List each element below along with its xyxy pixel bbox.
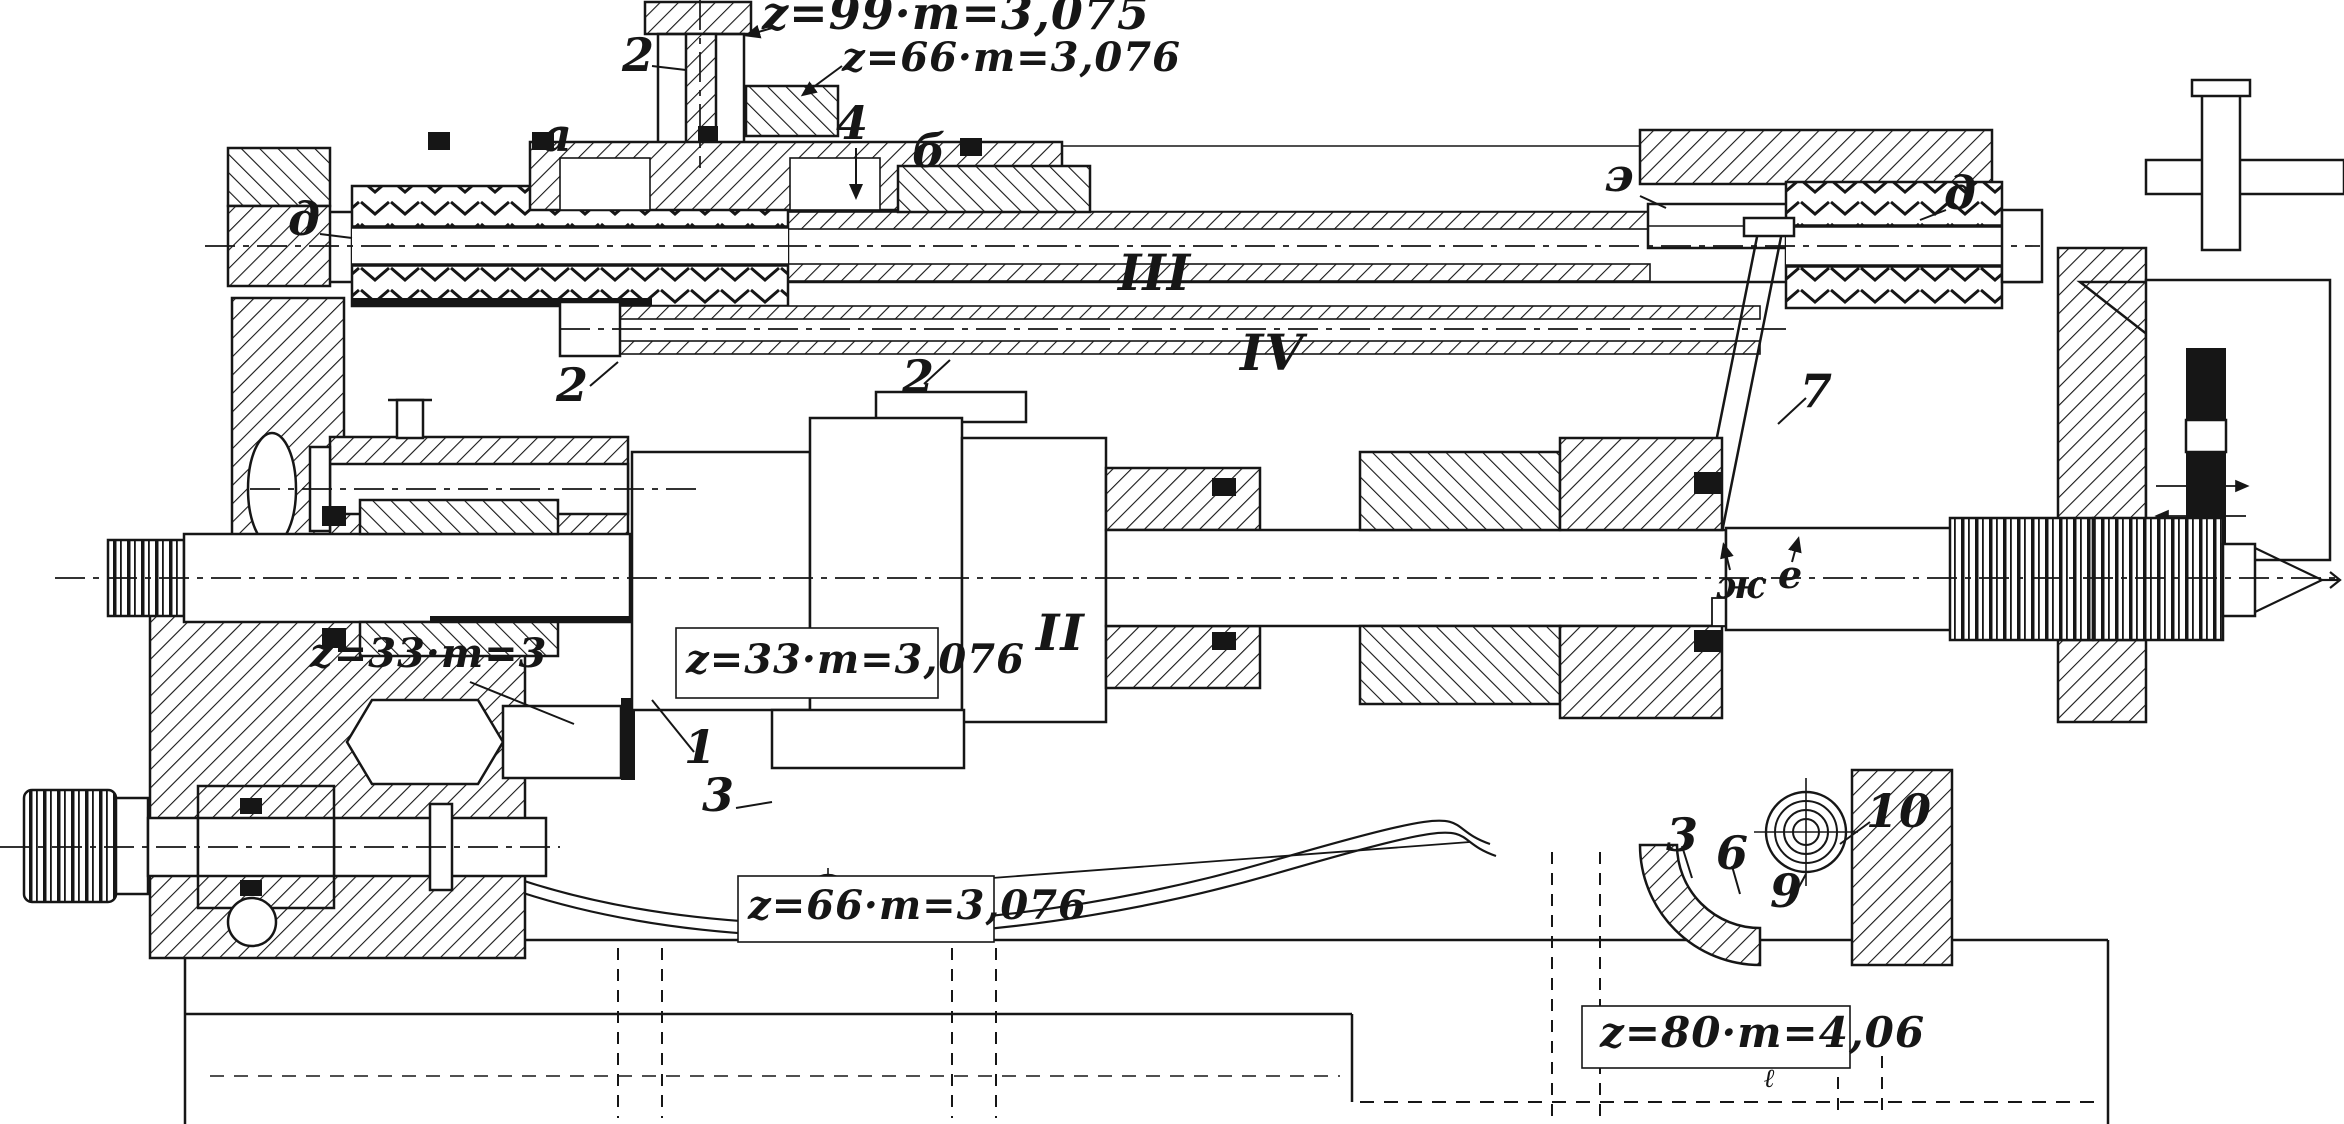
gear-spec-z99-label: z=99·m=3,075 bbox=[762, 0, 1150, 36]
gear-spec-z33-alt-label: z=33·m=3,076 bbox=[686, 640, 1025, 680]
part-number-1-label: 1 bbox=[684, 724, 717, 770]
part-number-3-left-label: 3 bbox=[702, 772, 735, 818]
part-number-10-label: 10 bbox=[1866, 788, 1932, 834]
part-number-2-right-label: 2 bbox=[902, 354, 935, 400]
part-number-9-label: 9 bbox=[1770, 868, 1803, 914]
part-number-2-left-label: 2 bbox=[556, 362, 589, 408]
letter-label-a: а bbox=[542, 112, 573, 158]
letter-label-e: е bbox=[1778, 556, 1803, 594]
gear-spec-z66-upper-label: z=66·m=3,076 bbox=[842, 38, 1181, 78]
letter-label-e-reversed: э bbox=[1604, 152, 1635, 198]
gear-spec-z80-label: z=80·m=4,06 bbox=[1600, 1012, 1925, 1054]
shaft-label-ii: II bbox=[1036, 608, 1085, 658]
gear-spec-z66-lower-label: z=66·m=3,076 bbox=[748, 886, 1087, 926]
part-number-6-label: 6 bbox=[1716, 830, 1749, 876]
part-number-3-right-label: 3 bbox=[1666, 812, 1699, 858]
part-number-2-top-label: 2 bbox=[622, 32, 655, 78]
letter-label-d-right: д bbox=[1944, 170, 1977, 216]
shaft-label-iv: IV bbox=[1240, 328, 1304, 378]
gear-spec-z33-plain-label: z=33·m=3 bbox=[310, 634, 548, 674]
letter-label-d-left: д bbox=[288, 196, 321, 242]
letter-label-b: б bbox=[912, 128, 946, 174]
dimension-letter-l-label: ℓ bbox=[1764, 1066, 1776, 1092]
gearbox-cross-section-figure: z=99·m=3,075 z=66·m=3,076 2 а 4 б д э д … bbox=[0, 0, 2344, 1124]
section-drawing bbox=[0, 0, 2344, 1124]
part-number-7-label: 7 bbox=[1800, 368, 1833, 414]
shaft-label-iii: III bbox=[1118, 248, 1191, 298]
letter-label-zh: ж bbox=[1716, 566, 1767, 604]
part-number-4-label: 4 bbox=[836, 100, 869, 146]
